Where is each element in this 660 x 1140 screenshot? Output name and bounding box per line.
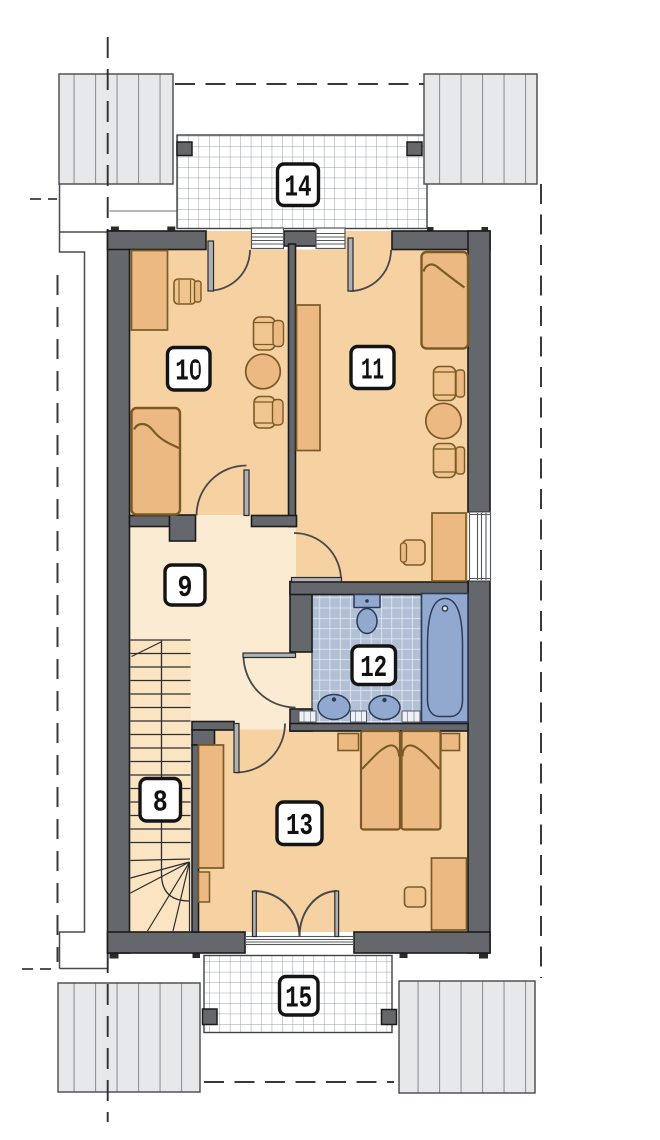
svg-text:9: 9 xyxy=(178,571,193,606)
svg-text:12: 12 xyxy=(360,651,387,686)
svg-text:8: 8 xyxy=(153,786,168,821)
svg-text:13: 13 xyxy=(286,809,313,844)
svg-text:15: 15 xyxy=(285,982,312,1017)
svg-text:11: 11 xyxy=(361,354,384,389)
svg-text:14: 14 xyxy=(285,171,312,206)
